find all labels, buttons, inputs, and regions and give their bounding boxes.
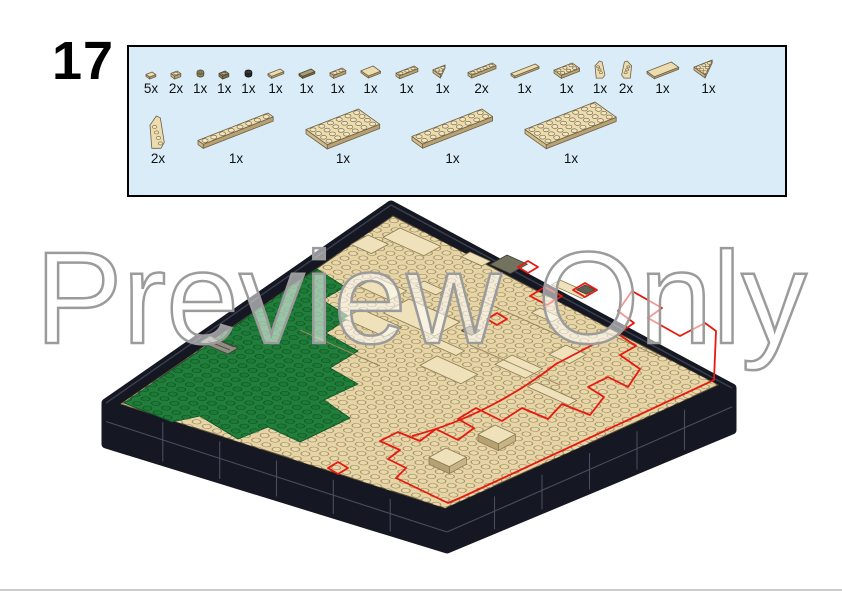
part-quantity: 1x (229, 152, 243, 167)
model-green-region (124, 269, 358, 442)
part-quantity: 2x (151, 152, 165, 167)
part-item-round-plate-1x1-black: 1x (241, 66, 255, 97)
part-quantity: 1x (241, 82, 255, 97)
part-icon-plate-1x2-tan (327, 65, 349, 82)
part-item-wedge-plate-4x2-tall-tan: 2x (147, 113, 169, 167)
part-quantity: 1x (517, 82, 531, 97)
part-quantity: 1x (193, 82, 207, 97)
part-quantity: 5x (144, 82, 158, 97)
part-icon-wedge-plate-2x2-tan (430, 62, 456, 82)
part-icon-tile-1x2-tan (265, 66, 287, 82)
part-icon-tile-2x4-tan (644, 59, 682, 82)
part-icon-tile-2x2-tan (358, 63, 384, 82)
part-item-wedge-2x4-left-tan: 1x (592, 58, 609, 97)
part-item-tile-1x4-tan: 1x (508, 61, 542, 97)
part-item-plate-1x8-tan: 1x (195, 110, 277, 167)
part-quantity: 1x (559, 82, 573, 97)
part-icon-wedge-plate-4x2-tall-tan (147, 113, 169, 152)
parts-row-1: 5x2x1x1x1x1x1x1x1x1x1x2x1x1x1x2x1x1x (143, 57, 785, 97)
part-item-wedge-plate-2x2-tan: 1x (430, 62, 456, 97)
part-icon-plate-2x3-tan (551, 60, 583, 82)
part-icon-wedge-plate-3x3-tan (691, 57, 727, 82)
part-quantity: 1x (268, 82, 282, 97)
part-item-plate-1x4-tan: 2x (465, 60, 499, 97)
part-icon-round-plate-1x1-black (242, 66, 255, 82)
part-quantity: 1x (217, 82, 231, 97)
part-icon-wedge-2x4-left-tan (592, 58, 609, 82)
parts-list-box: 5x2x1x1x1x1x1x1x1x1x1x2x1x1x1x2x1x1x 2x1… (127, 45, 787, 197)
part-quantity: 2x (619, 82, 633, 97)
step-number: 17 (52, 30, 114, 92)
part-quantity: 1x (593, 82, 607, 97)
part-item-tile-1x2-tan: 1x (265, 66, 287, 97)
part-item-plate-1x3-tan: 1x (393, 63, 421, 97)
part-icon-wedge-2x4-right-tan (618, 58, 635, 82)
part-icon-plate-2x8-tan (409, 106, 496, 152)
part-icon-tile-1x4-tan (508, 61, 542, 82)
part-item-plate-4x6-tan: 1x (303, 106, 383, 167)
instruction-page: 17 5x2x1x1x1x1x1x1x1x1x1x2x1x1x1x2x1x1x … (0, 0, 842, 595)
part-icon-plate-1x3-tan (393, 63, 421, 82)
part-item-plate-1x2-tan: 1x (327, 65, 349, 97)
part-item-wedge-plate-3x3-tan: 1x (691, 57, 727, 97)
part-quantity: 1x (564, 152, 578, 167)
part-icon-plate-1x4-tan (465, 60, 499, 82)
part-icon-plate-1x1-tan (168, 68, 184, 82)
part-item-tile-2x2-tan: 1x (358, 63, 384, 97)
part-item-wedge-2x4-right-tan: 2x (618, 58, 635, 97)
part-icon-plate-1x1-dark-tan (216, 68, 232, 82)
part-item-plate-2x8-tan: 1x (409, 106, 496, 167)
part-item-plate-1x1-tan: 2x (168, 68, 184, 97)
part-item-tile-1x2-dark-tan: 1x (296, 66, 318, 97)
part-item-plate-2x3-tan: 1x (551, 60, 583, 97)
part-item-plate-4x8-tan: 1x (522, 99, 620, 167)
part-quantity: 2x (169, 82, 183, 97)
part-quantity: 1x (445, 152, 459, 167)
part-icon-plate-1x8-tan (195, 110, 277, 152)
part-item-round-plate-1x1-dark-tan: 1x (193, 66, 207, 97)
footer-divider (0, 589, 842, 591)
part-icon-tile-1x2-dark-tan (296, 66, 318, 82)
parts-row-2: 2x1x1x1x1x (147, 99, 785, 167)
part-quantity: 1x (435, 82, 449, 97)
part-quantity: 1x (363, 82, 377, 97)
part-quantity: 1x (655, 82, 669, 97)
part-item-tile-1x1-tan: 5x (143, 69, 159, 97)
part-quantity: 1x (299, 82, 313, 97)
part-quantity: 1x (330, 82, 344, 97)
part-quantity: 1x (399, 82, 413, 97)
part-item-plate-1x1-dark-tan: 1x (216, 68, 232, 97)
part-quantity: 1x (336, 152, 350, 167)
part-quantity: 1x (701, 82, 715, 97)
part-icon-plate-4x6-tan (303, 106, 383, 152)
part-icon-round-plate-1x1-dark-tan (194, 66, 207, 82)
part-item-tile-2x4-tan: 1x (644, 59, 682, 97)
part-quantity: 2x (474, 82, 488, 97)
part-icon-plate-4x8-tan (522, 99, 620, 152)
